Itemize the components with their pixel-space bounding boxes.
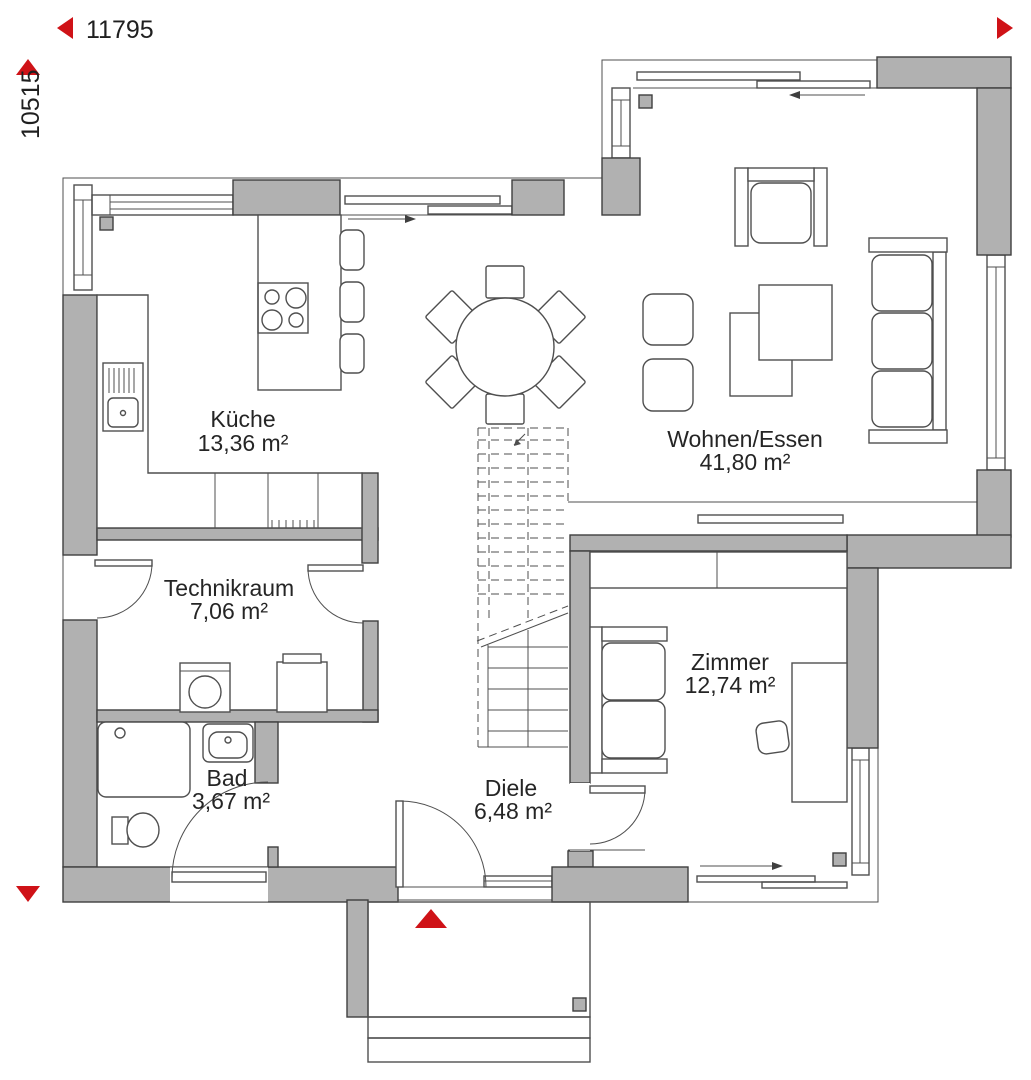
bar-stool xyxy=(340,230,364,270)
room-area-zimmer: 12,74 m² xyxy=(685,672,776,698)
dim-arrow-right-icon xyxy=(997,17,1013,39)
door-zimmer xyxy=(568,783,645,851)
pouf xyxy=(643,359,693,411)
door-technikraum-exterior xyxy=(95,560,152,618)
bar-stool xyxy=(340,282,364,322)
slide-arrow-right-icon xyxy=(772,862,783,870)
porch-step xyxy=(368,1017,590,1038)
shower xyxy=(98,722,190,797)
desk-chair xyxy=(755,720,790,755)
room-area-diele: 6,48 m² xyxy=(474,798,552,824)
bar-stool xyxy=(340,334,364,373)
kitchen-fixtures xyxy=(97,215,364,528)
coffee-tables xyxy=(730,285,832,396)
floor-plan-drawing: 11795 10515 Küche 13,36 m² Wohnen/Essen … xyxy=(0,0,1031,1080)
armchair xyxy=(735,168,827,246)
staircase xyxy=(477,428,568,747)
porch-step xyxy=(368,1038,590,1062)
room-area-kueche: 13,36 m² xyxy=(198,430,289,456)
dining-set xyxy=(425,266,586,424)
column xyxy=(833,853,846,866)
room-area-technikraum: 7,06 m² xyxy=(190,598,268,624)
dim-height-label: 10515 xyxy=(17,69,45,139)
window-kitchen-north xyxy=(92,195,233,215)
washbasin xyxy=(203,724,253,762)
dim-width-label: 11795 xyxy=(86,16,154,44)
room-area-wohnen: 41,80 m² xyxy=(700,449,791,475)
window-living-west xyxy=(612,88,630,158)
column xyxy=(639,95,652,108)
entrance-marker-icon xyxy=(415,909,447,928)
boiler xyxy=(277,654,327,712)
dim-arrow-down-icon xyxy=(16,886,40,902)
toilet xyxy=(112,813,159,847)
kitchen-island xyxy=(258,215,341,390)
sofa xyxy=(869,238,947,443)
window-kitchen-west xyxy=(74,185,92,290)
window-zimmer-east xyxy=(852,748,869,875)
window-zimmer-sliding xyxy=(697,862,847,888)
living-furniture xyxy=(643,168,947,523)
column xyxy=(100,217,113,230)
washing-machine xyxy=(180,663,230,712)
sideboard xyxy=(698,515,843,523)
door-technikraum-hall xyxy=(308,565,363,623)
floor-plan-page: 11795 10515 Küche 13,36 m² Wohnen/Essen … xyxy=(0,0,1031,1080)
door-entry xyxy=(396,801,486,887)
pouf xyxy=(643,294,693,345)
room-label-kueche: Küche xyxy=(210,406,275,432)
dim-arrow-left-icon xyxy=(57,17,73,39)
wardrobe xyxy=(590,552,847,588)
dining-chair xyxy=(486,266,524,298)
desk xyxy=(792,663,847,802)
room-area-bad: 3,67 m² xyxy=(192,788,270,814)
dining-chair xyxy=(486,394,524,424)
window-living-sliding xyxy=(637,72,870,99)
window-entry-sidelight xyxy=(484,876,552,887)
slide-arrow-right-icon xyxy=(405,215,416,223)
entrance-porch xyxy=(368,902,590,1062)
sofa-bed xyxy=(590,627,667,773)
dining-table xyxy=(456,298,554,396)
column xyxy=(573,998,586,1011)
technikraum-fixtures xyxy=(180,654,327,712)
slide-arrow-left-icon xyxy=(789,91,800,99)
window-kitchen-sliding xyxy=(345,196,512,223)
window-living-east xyxy=(987,255,1005,470)
